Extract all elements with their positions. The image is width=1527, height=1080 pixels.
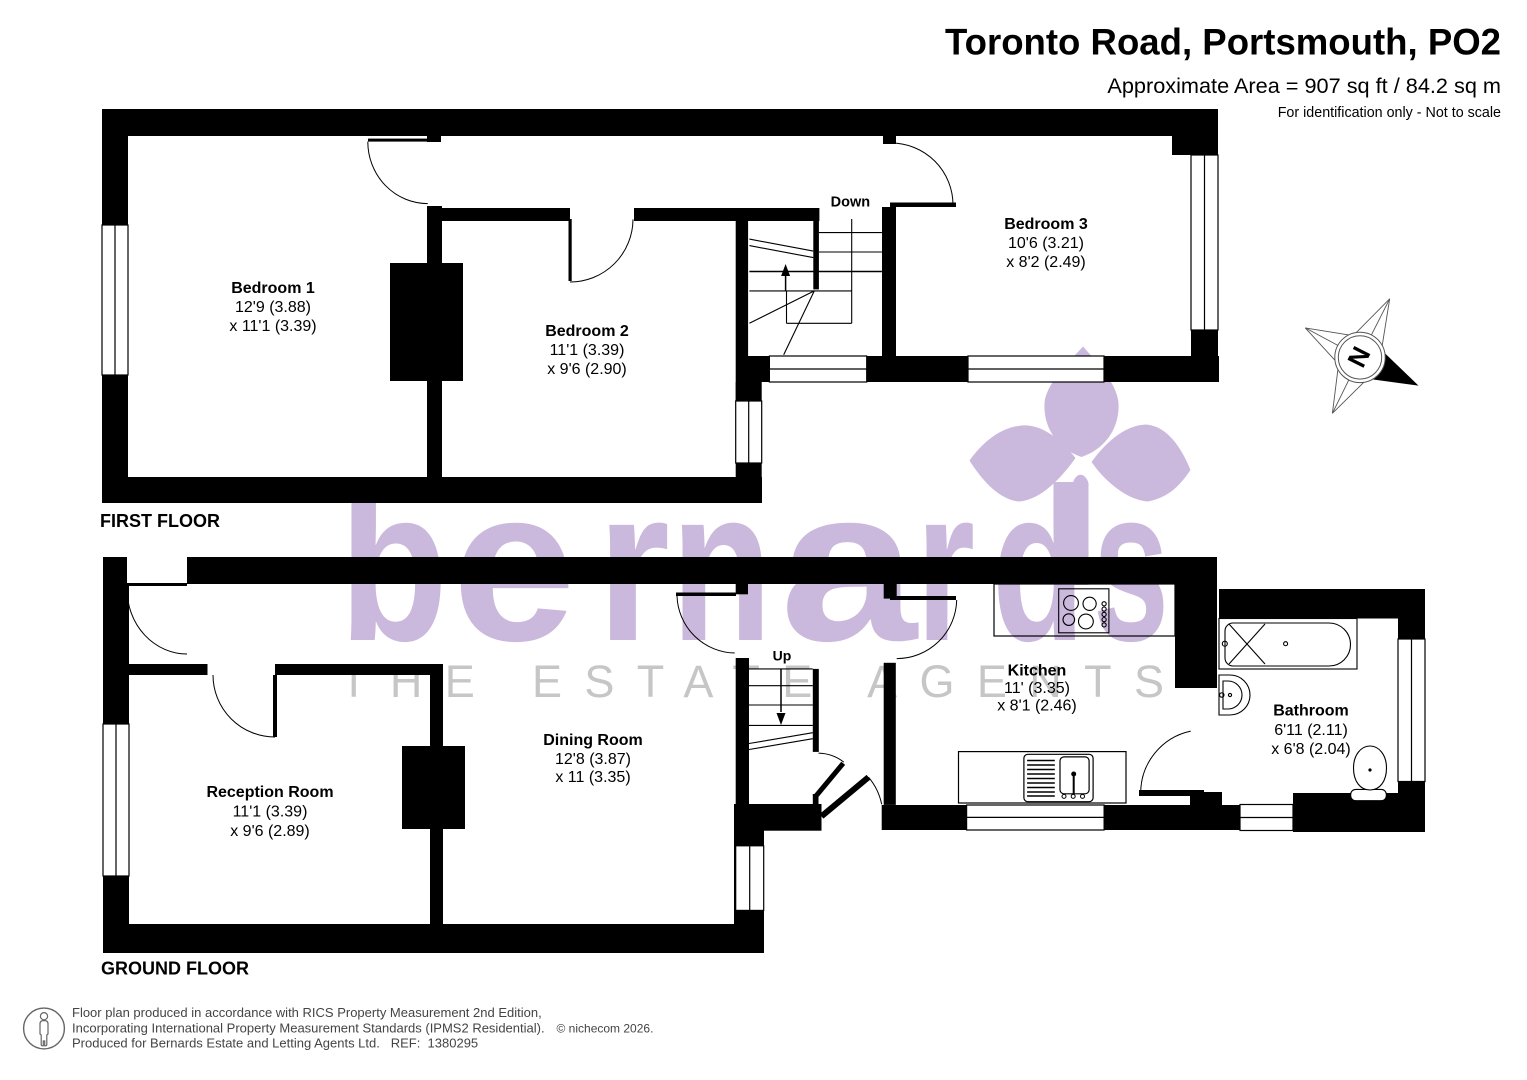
svg-text:For identification only - Not: For identification only - Not to scale <box>1278 105 1501 121</box>
svg-text:Approximate Area = 907 sq ft /: Approximate Area = 907 sq ft / 84.2 sq m <box>1107 73 1501 98</box>
svg-text:Bathroom: Bathroom <box>1273 703 1349 720</box>
svg-text:x 6'8 (2.04): x 6'8 (2.04) <box>1271 741 1351 758</box>
svg-text:12'8 (3.87): 12'8 (3.87) <box>555 751 631 768</box>
svg-text:Down: Down <box>831 195 870 211</box>
svg-text:x 9'6 (2.90): x 9'6 (2.90) <box>547 361 627 378</box>
svg-text:x 8'2 (2.49): x 8'2 (2.49) <box>1006 254 1086 271</box>
svg-text:10'6 (3.21): 10'6 (3.21) <box>1008 235 1084 252</box>
svg-text:Kitchen: Kitchen <box>1008 663 1067 680</box>
svg-text:11' (3.35): 11' (3.35) <box>1004 680 1070 697</box>
svg-text:11'1 (3.39): 11'1 (3.39) <box>233 804 308 821</box>
svg-text:FIRST FLOOR: FIRST FLOOR <box>100 511 220 531</box>
svg-text:x 11'1 (3.39): x 11'1 (3.39) <box>229 318 316 335</box>
svg-text:Toronto Road, Portsmouth, PO2: Toronto Road, Portsmouth, PO2 <box>945 22 1501 63</box>
svg-text:Incorporating International Pr: Incorporating International Property Mea… <box>72 1020 545 1035</box>
svg-text:Produced for Bernards Estate a: Produced for Bernards Estate and Letting… <box>72 1036 478 1051</box>
svg-text:GROUND FLOOR: GROUND FLOOR <box>101 959 249 979</box>
svg-text:Bedroom 2: Bedroom 2 <box>545 323 629 340</box>
svg-text:6'11 (2.11): 6'11 (2.11) <box>1274 722 1348 739</box>
svg-text:x 8'1 (2.46): x 8'1 (2.46) <box>997 698 1077 715</box>
svg-text:Bedroom 3: Bedroom 3 <box>1004 216 1088 233</box>
svg-text:© nichecom 2026.: © nichecom 2026. <box>557 1021 654 1035</box>
svg-text:Bedroom 1: Bedroom 1 <box>231 280 315 297</box>
svg-text:x 9'6 (2.89): x 9'6 (2.89) <box>230 823 310 840</box>
svg-text:11'1 (3.39): 11'1 (3.39) <box>550 342 625 359</box>
svg-text:Up: Up <box>773 648 792 664</box>
svg-text:Floor plan produced in accorda: Floor plan produced in accordance with R… <box>72 1005 542 1020</box>
svg-text:x 11 (3.35): x 11 (3.35) <box>555 769 630 786</box>
svg-text:Reception Room: Reception Room <box>206 784 333 801</box>
svg-text:Dining Room: Dining Room <box>543 732 643 749</box>
svg-text:12'9 (3.88): 12'9 (3.88) <box>235 299 311 316</box>
